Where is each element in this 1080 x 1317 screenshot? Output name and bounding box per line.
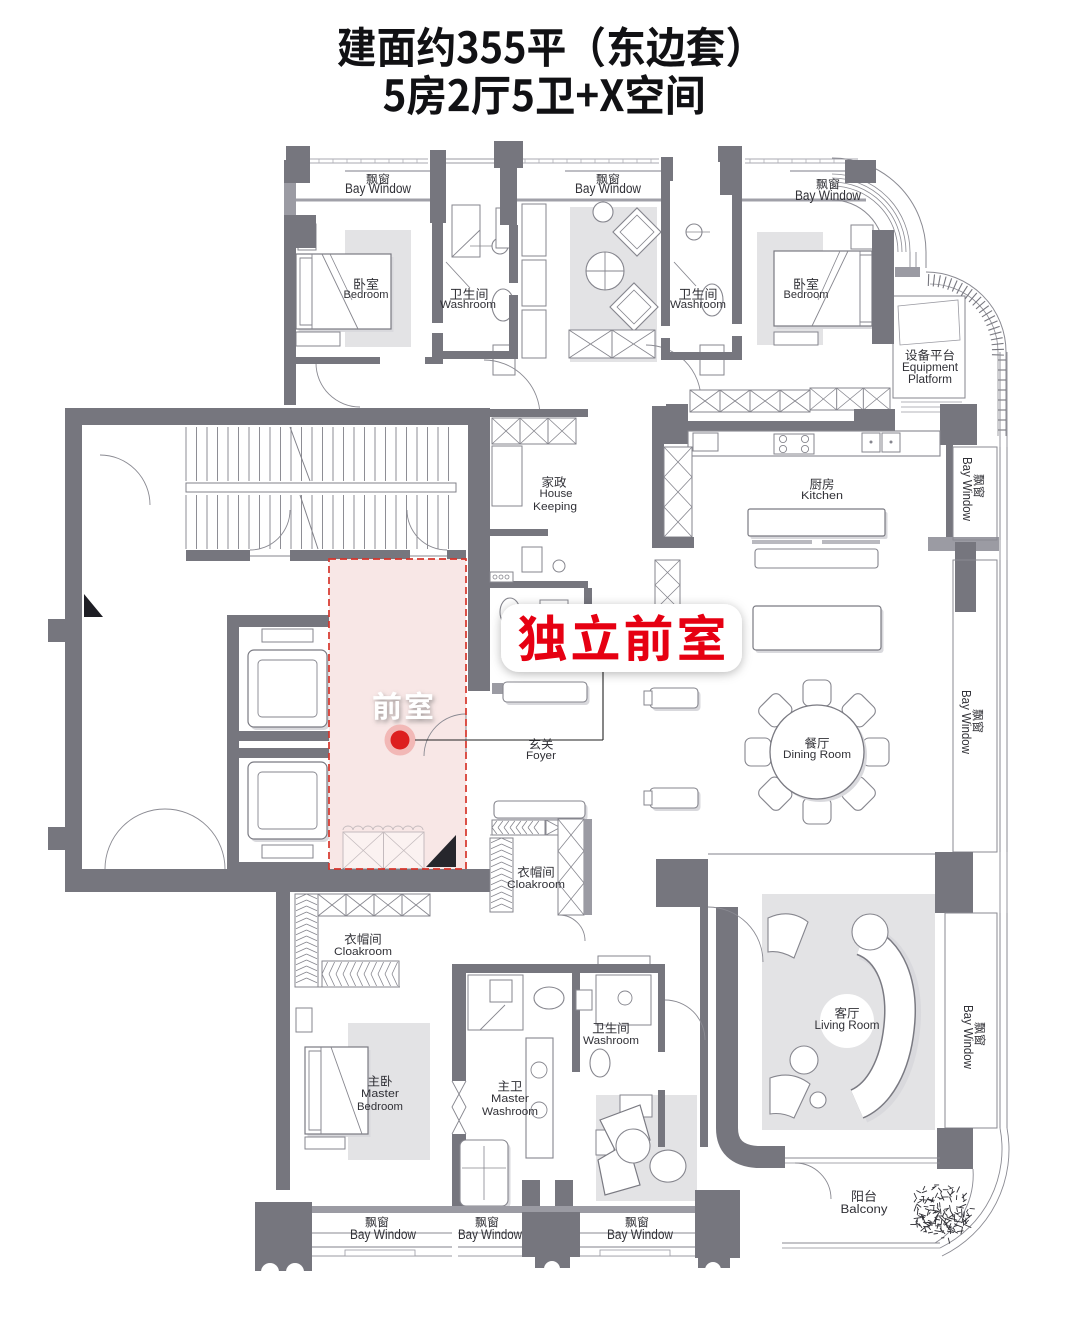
svg-text:Bay Window: Bay Window xyxy=(350,1227,416,1242)
svg-text:Bay Window: Bay Window xyxy=(575,181,641,196)
svg-text:Kitchen: Kitchen xyxy=(801,490,843,502)
svg-text:Master: Master xyxy=(491,1093,529,1105)
svg-text:Bay Window: Bay Window xyxy=(345,181,411,196)
svg-text:Washroom: Washroom xyxy=(670,299,726,311)
svg-text:Living Room: Living Room xyxy=(815,1020,880,1032)
svg-text:Foyer: Foyer xyxy=(526,750,556,762)
svg-text:Cloakroom: Cloakroom xyxy=(507,879,565,891)
svg-text:Bay Window: Bay Window xyxy=(961,1005,976,1070)
svg-text:Platform: Platform xyxy=(908,374,952,386)
svg-text:Bedroom: Bedroom xyxy=(357,1101,403,1113)
svg-text:Bay Window: Bay Window xyxy=(607,1227,673,1242)
svg-text:Cloakroom: Cloakroom xyxy=(334,946,392,958)
svg-text:Dining Room: Dining Room xyxy=(783,749,851,761)
svg-text:Washroom: Washroom xyxy=(583,1035,639,1047)
svg-text:Washroom: Washroom xyxy=(440,299,496,311)
svg-text:Bedroom: Bedroom xyxy=(344,289,389,301)
svg-text:Bay Window: Bay Window xyxy=(458,1227,522,1242)
svg-text:House: House xyxy=(540,488,573,500)
svg-text:Equipment: Equipment xyxy=(902,362,959,374)
svg-text:Washroom: Washroom xyxy=(482,1106,538,1118)
svg-text:Keeping: Keeping xyxy=(533,501,577,513)
svg-text:Master: Master xyxy=(361,1088,399,1100)
svg-text:Balcony: Balcony xyxy=(841,1204,888,1216)
svg-text:Bay Window: Bay Window xyxy=(959,690,974,755)
svg-text:Bedroom: Bedroom xyxy=(784,289,829,301)
svg-text:Bay Window: Bay Window xyxy=(960,457,975,522)
svg-text:Bay Window: Bay Window xyxy=(795,188,861,203)
